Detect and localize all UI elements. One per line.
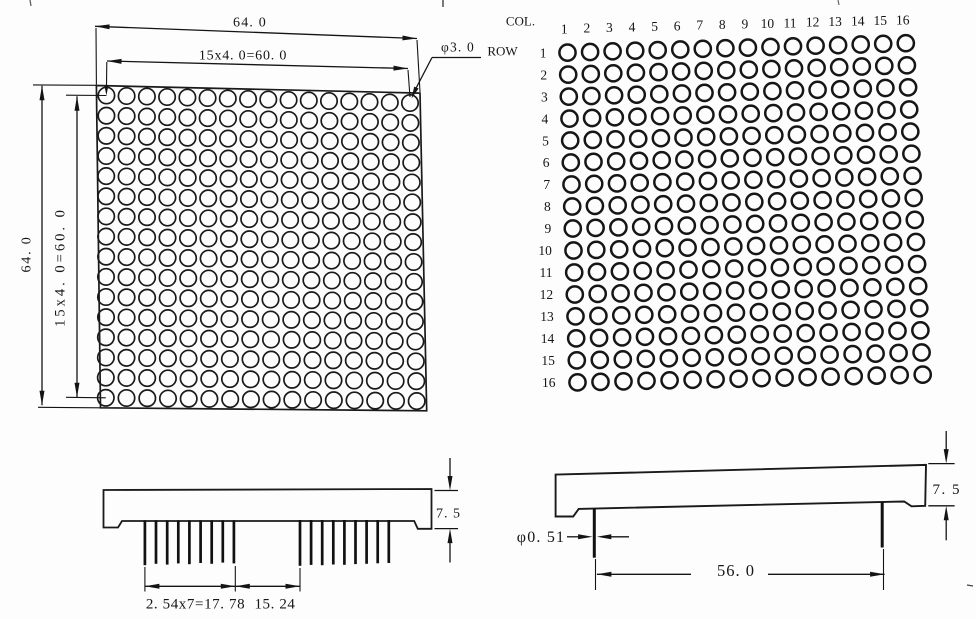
svg-text:7. 5: 7. 5: [436, 507, 461, 522]
svg-text:ROW: ROW: [487, 44, 518, 59]
svg-text:2: 2: [540, 67, 547, 82]
svg-text:15: 15: [541, 353, 555, 368]
svg-text:11: 11: [784, 15, 797, 30]
svg-text:15: 15: [874, 13, 888, 28]
svg-text:7: 7: [543, 177, 550, 192]
svg-text:64. 0: 64. 0: [20, 236, 35, 273]
svg-text:8: 8: [544, 199, 551, 214]
svg-text:4: 4: [542, 111, 549, 126]
svg-text:3: 3: [606, 20, 613, 35]
svg-text:12: 12: [540, 287, 554, 302]
svg-text:7. 5: 7. 5: [932, 482, 961, 498]
svg-text:8: 8: [719, 17, 726, 32]
svg-text:5: 5: [542, 133, 549, 148]
svg-text:6: 6: [674, 18, 681, 33]
svg-text:15x4. 0=60. 0: 15x4. 0=60. 0: [199, 49, 287, 64]
svg-text:13: 13: [828, 14, 842, 29]
svg-text:2: 2: [584, 21, 591, 36]
svg-text:16: 16: [542, 375, 556, 390]
svg-text:2. 54x7=17. 78: 2. 54x7=17. 78: [146, 597, 245, 613]
svg-text:COL.: COL.: [506, 14, 535, 29]
svg-text:9: 9: [545, 221, 552, 236]
svg-text:6: 6: [543, 155, 550, 170]
svg-text:16: 16: [896, 12, 910, 27]
svg-text:11: 11: [540, 265, 553, 280]
svg-text:4: 4: [629, 20, 636, 35]
svg-text:9: 9: [742, 17, 749, 32]
svg-text:φ3. 0: φ3. 0: [441, 40, 475, 55]
svg-text:7: 7: [696, 18, 703, 33]
svg-text:5: 5: [651, 19, 658, 34]
svg-text:12: 12: [806, 15, 820, 30]
svg-text:13: 13: [540, 309, 554, 324]
svg-text:3: 3: [541, 89, 548, 104]
svg-text:10: 10: [538, 243, 552, 258]
svg-text:14: 14: [851, 14, 865, 29]
svg-text:1: 1: [540, 45, 547, 60]
svg-text:15x4. 0=60. 0: 15x4. 0=60. 0: [53, 207, 69, 327]
svg-text:56. 0: 56. 0: [717, 561, 755, 580]
svg-text:14: 14: [541, 331, 555, 346]
svg-text:15. 24: 15. 24: [254, 597, 295, 613]
svg-text:1: 1: [561, 21, 568, 36]
svg-text:φ0. 51: φ0. 51: [517, 529, 565, 546]
svg-text:64. 0: 64. 0: [233, 16, 267, 31]
svg-text:10: 10: [761, 16, 775, 31]
